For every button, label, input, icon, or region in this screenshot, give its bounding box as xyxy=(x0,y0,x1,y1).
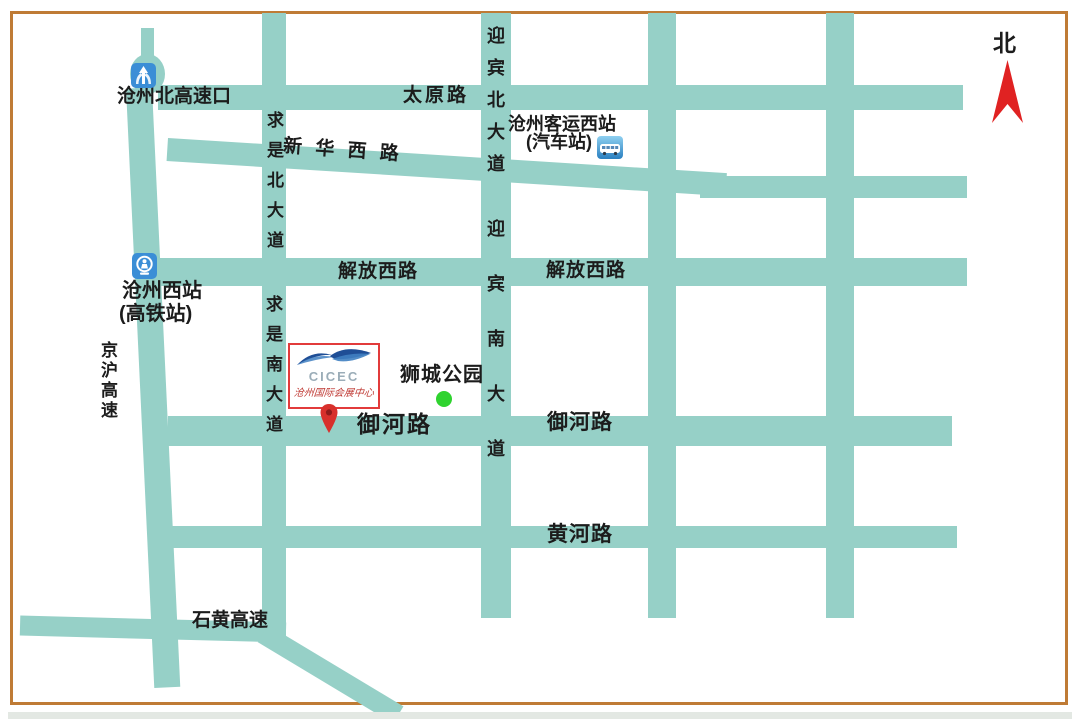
bottom-edge-strip xyxy=(8,712,1072,719)
label-cangzhou-west-station-sub: (高铁站) xyxy=(119,304,192,324)
cicec-logo-text: CICEC xyxy=(309,369,359,384)
cicec-venue-box: CICEC 沧州国际会展中心 xyxy=(288,343,380,409)
cicec-wings-logo xyxy=(296,347,372,371)
label-huanghe-road: 黄河路 xyxy=(547,524,613,545)
label-cangzhou-north-expressway-exit: 沧州北高速口 xyxy=(117,87,231,106)
location-pin-icon xyxy=(320,404,338,433)
label-yuhe-road-2: 御河路 xyxy=(547,412,613,433)
label-cangzhou-west-station: 沧州西站 xyxy=(122,281,202,301)
highway-interchange-icon xyxy=(131,63,156,88)
label-yuhe-road-1: 御河路 xyxy=(357,413,432,436)
label-keyun-west-station: 沧州客运西站 xyxy=(508,115,616,133)
label-yingbin-north-avenue: 迎宾北大道 xyxy=(486,26,504,186)
label-jinghu-expressway: 京沪高速 xyxy=(99,341,116,421)
label-yingbin-south-avenue: 迎宾南大道 xyxy=(486,219,504,494)
shicheng-park-green-dot xyxy=(436,391,452,407)
label-qiushi-south-avenue: 求是南大道 xyxy=(264,295,281,445)
label-qiushi-north-avenue: 求是北大道 xyxy=(265,111,282,261)
bus-station-icon xyxy=(597,136,623,159)
label-keyun-west-station-sub: (汽车站) xyxy=(526,133,592,151)
label-north: 北 xyxy=(993,32,1016,55)
label-shicheng-park: 狮城公园 xyxy=(400,365,484,385)
train-station-icon xyxy=(132,253,157,279)
road-taiyuan xyxy=(158,85,963,110)
label-jiefang-west-road-1: 解放西路 xyxy=(338,262,418,281)
road-xinhua-west-east-part xyxy=(700,176,967,198)
label-taiyuan-road: 太原路 xyxy=(403,86,469,105)
label-jiefang-west-road-2: 解放西路 xyxy=(546,261,626,280)
cicec-name-calligraphy: 沧州国际会展中心 xyxy=(293,384,375,399)
label-shihuang-expressway: 石黄高速 xyxy=(192,611,268,630)
map-screenshot: 太原路 新 华 西 路 解放西路 解放西路 御河路 御河路 黄河路 石黄高速 京… xyxy=(0,0,1080,719)
north-arrow-icon xyxy=(992,60,1023,123)
